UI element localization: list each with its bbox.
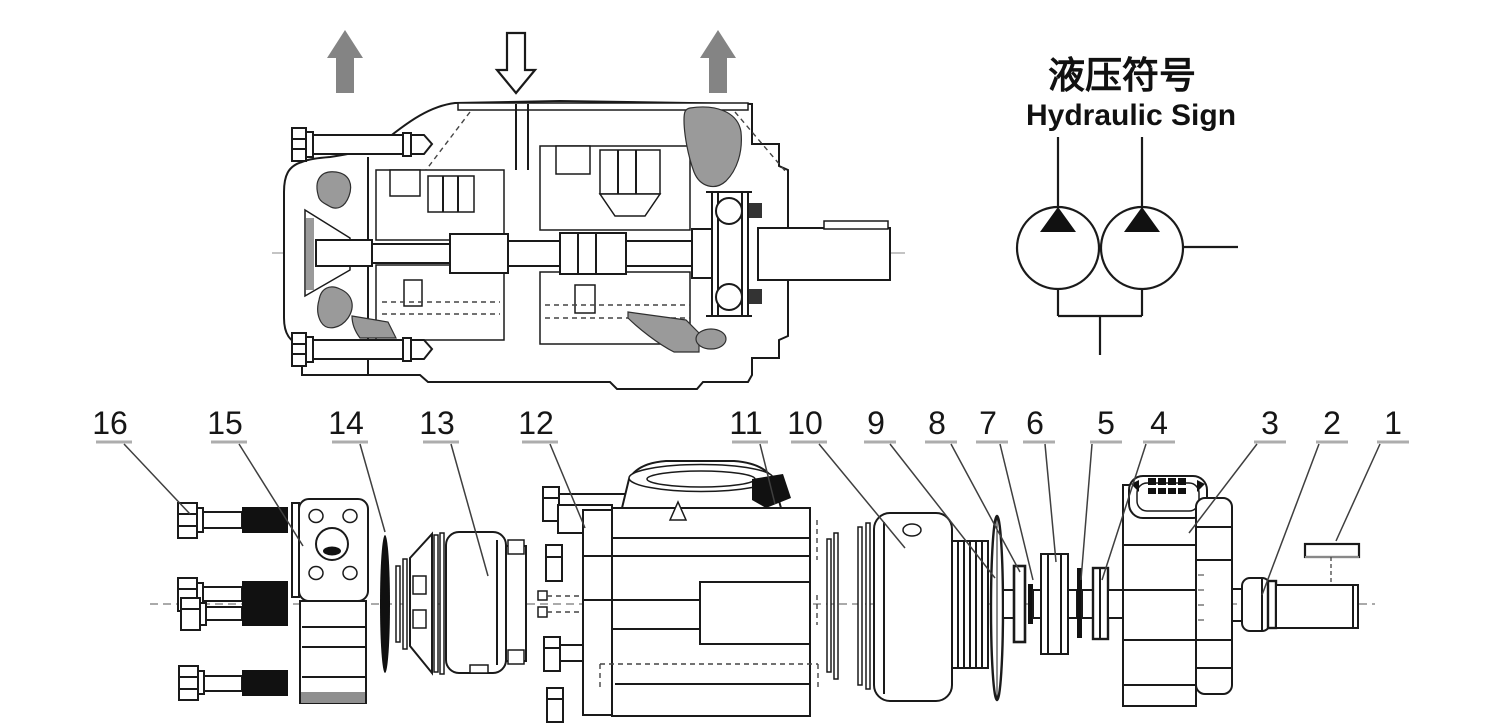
- part-label-13: 13: [419, 405, 455, 441]
- part-8-ring: [1014, 566, 1025, 642]
- part-2-coupling-and-shaft: [1242, 578, 1358, 631]
- port-cavity-bottom-right-2: [696, 329, 726, 349]
- bearing-ball-bottom: [716, 284, 742, 310]
- leader-line-1: [1336, 444, 1380, 541]
- hydraulic-sign-title-zh: 液压符号: [1048, 55, 1196, 96]
- bearing-seal-bottom: [749, 289, 762, 304]
- part-label-4: 4: [1150, 405, 1168, 441]
- part-label-16: 16: [92, 405, 128, 441]
- part-3-front-cover: [1123, 476, 1242, 706]
- part-14-o-ring: [380, 535, 390, 673]
- part-label-10: 10: [787, 405, 823, 441]
- part-9-seal-disc: [991, 516, 1003, 700]
- part-label-8: 8: [928, 405, 946, 441]
- leader-line-16: [124, 444, 190, 514]
- part-label-11: 11: [729, 405, 762, 441]
- part-label-1: 1: [1384, 405, 1402, 441]
- cross-section-view: [272, 101, 905, 389]
- flow-up-arrow-right: [700, 30, 736, 93]
- pump-diagram: 液压符号 Hydraulic Sign: [0, 0, 1487, 724]
- bearing-seal-top: [749, 203, 762, 218]
- part-label-7: 7: [979, 405, 997, 441]
- leader-line-6: [1045, 444, 1056, 562]
- flow-down-arrow-center: [497, 33, 535, 93]
- part-4-collar: [1093, 568, 1108, 639]
- part-label-3: 3: [1261, 405, 1279, 441]
- leader-line-5: [1081, 444, 1092, 580]
- bearing-ball-top: [716, 198, 742, 224]
- seal-strip: [306, 218, 314, 290]
- leader-line-2: [1262, 444, 1319, 595]
- part-1-key: [1305, 544, 1359, 585]
- flow-arrows: [327, 30, 736, 93]
- part-label-14: 14: [328, 405, 364, 441]
- keyway: [824, 221, 888, 229]
- part-12-housing: [538, 461, 818, 722]
- part-label-6: 6: [1026, 405, 1044, 441]
- flow-up-arrow-left: [327, 30, 363, 93]
- diagram-canvas: 液压符号 Hydraulic Sign: [0, 0, 1487, 724]
- part-label-15: 15: [207, 405, 243, 441]
- part-10-cartridge: [827, 513, 988, 701]
- part-13-cartridge: [396, 532, 526, 674]
- part-15-rear-cover: [292, 499, 368, 703]
- part-label-2: 2: [1323, 405, 1341, 441]
- part-16-bolts: [178, 503, 288, 700]
- exploded-view: [150, 461, 1375, 722]
- hydraulic-symbol: 液压符号 Hydraulic Sign: [1017, 55, 1238, 355]
- part-label-12: 12: [518, 405, 554, 441]
- leader-line-7: [1000, 444, 1033, 580]
- part-label-5: 5: [1097, 405, 1115, 441]
- part-6-bearing: [1041, 554, 1068, 654]
- part-label-9: 9: [867, 405, 885, 441]
- hydraulic-sign-title-en: Hydraulic Sign: [1026, 99, 1236, 132]
- pump-symbol: [1017, 137, 1238, 355]
